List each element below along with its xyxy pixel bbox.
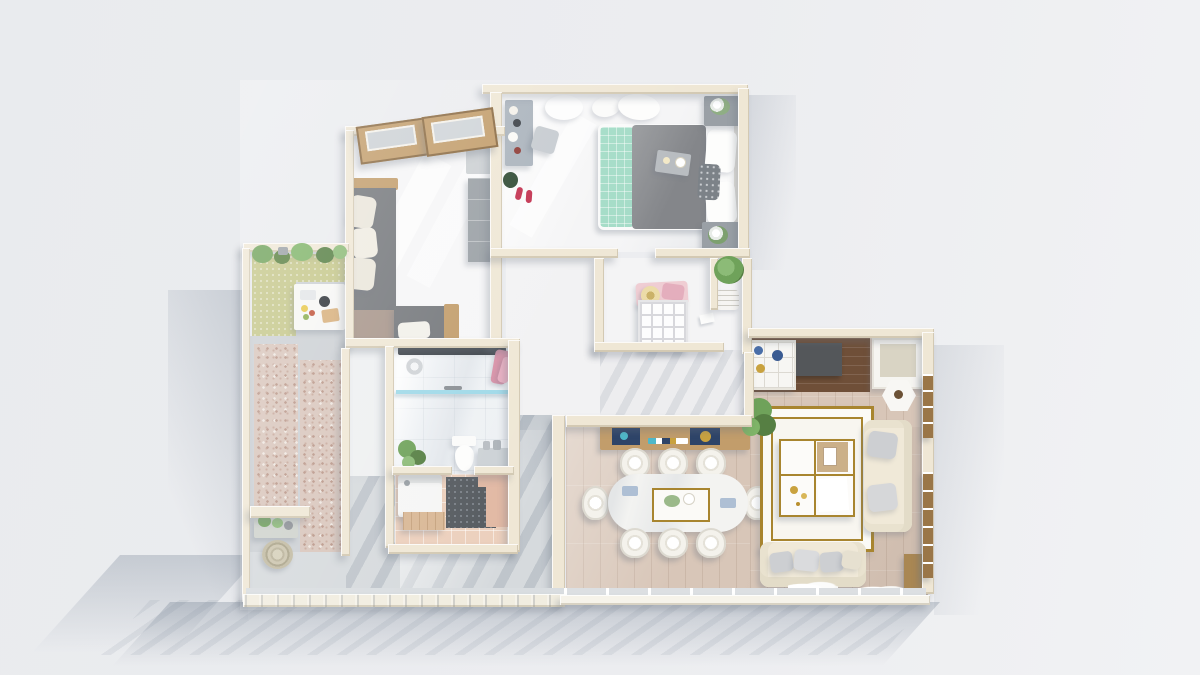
washer-dial (404, 480, 410, 486)
wall-bed2-bottom (345, 338, 520, 348)
mint-quilt (600, 127, 634, 227)
coffee-table-art-card (824, 448, 836, 465)
tray-cup (663, 157, 670, 164)
stand-plant-2 (272, 518, 283, 528)
vanity-bottle-1 (483, 441, 490, 450)
picnic-board (321, 308, 340, 323)
vanity-cup-red (514, 147, 521, 154)
nightstand-bottom-plant (708, 226, 728, 244)
window-frame-right-2 (923, 472, 933, 578)
dining-chair-bottom-3 (696, 528, 726, 558)
shower-glass-screen (396, 390, 512, 394)
wall-bath-laundry-a (392, 466, 452, 475)
pebble-strip-left (254, 344, 298, 508)
sofa-bottom-pillow-1 (769, 550, 795, 573)
coffee-table-cross-v (814, 439, 816, 517)
wall-dining-top (566, 415, 752, 427)
tray-greenery (664, 495, 680, 507)
coffee-table-gold-balls (790, 486, 798, 494)
table-placemat-right (720, 498, 736, 508)
wall-laundry-bottom (388, 544, 518, 554)
daybed-pillow-2 (351, 227, 379, 259)
gray-duvet (632, 125, 706, 229)
balcony-planter-1 (252, 245, 273, 263)
tv (794, 343, 842, 376)
table-gold-tray (652, 488, 710, 522)
shadow-bottom-streaks (100, 600, 930, 655)
console-decor-gold (700, 431, 711, 442)
shadow-right (934, 345, 1004, 615)
wall-bed2-left (345, 130, 354, 348)
picnic-tray (300, 290, 316, 300)
laundry-counter (403, 512, 445, 530)
laundry-basket (716, 290, 739, 310)
wall-hall-living (744, 352, 754, 418)
shower-head (406, 358, 423, 375)
picnic-fruit-green (303, 314, 309, 320)
wall-bath-right (508, 340, 520, 552)
shadow-left (168, 290, 248, 620)
cabinet-decor-blue-1 (754, 346, 763, 355)
vanity-plate-2 (508, 132, 518, 142)
stand-kettle (284, 521, 293, 530)
terrace-rail (243, 594, 565, 607)
balcony-planter-3 (291, 243, 313, 261)
hallway-floor (506, 255, 602, 415)
accent-pillow (697, 163, 721, 200)
sofa-bottom-pillow-4 (841, 550, 863, 571)
floorplan-render (0, 0, 1200, 675)
tray-flower (676, 158, 685, 167)
wall-balcony-step (250, 506, 310, 518)
cabinet-decor-gold (756, 364, 765, 373)
balcony-planter-4 (316, 247, 334, 263)
wall-closet-bottom (594, 342, 724, 352)
console-shelf-books (648, 438, 688, 444)
wall-living-top (748, 328, 934, 338)
dining-chair-bottom-2 (658, 528, 688, 558)
wall-bath-left (385, 346, 394, 548)
shadow-left-low (16, 555, 260, 670)
round-woven-mat (262, 540, 293, 569)
wall-dining-left (552, 415, 565, 600)
closet-nook-plant (714, 256, 744, 284)
wall-closet-left (594, 258, 604, 352)
table-placemat-left (622, 486, 638, 496)
hall-lower-floor (600, 350, 748, 416)
sofa-bottom-pillow-2 (793, 549, 820, 572)
wall-bath-laundry-b (474, 466, 514, 475)
wall-master-bottom-a (490, 248, 618, 258)
laundry-peach-step-side (486, 487, 508, 527)
wall-balcony-left (242, 248, 250, 602)
breakfast-tray (655, 150, 692, 177)
wall-master-right (738, 88, 749, 258)
wall-master-top (482, 84, 748, 94)
laundry-peach-step-top (478, 474, 508, 487)
curtain-blob-1 (545, 95, 583, 120)
console-decor-teal (620, 432, 628, 440)
sofa-right-pillow-2 (866, 482, 898, 512)
picnic-bowl-dark (319, 296, 330, 307)
vanity-bottle-2 (493, 440, 501, 450)
vanity-plate-1 (509, 106, 518, 115)
armchair-seat (880, 344, 916, 377)
tray-dishes (684, 494, 694, 504)
sofa-right-pillow-1 (866, 430, 898, 460)
hex-table-decor (894, 390, 903, 399)
vanity-cup-dark (513, 119, 521, 127)
coffee-table-cross (779, 474, 855, 476)
sofa-bottom-pillow-3 (819, 551, 844, 573)
closet-clothes (661, 283, 685, 302)
balcony-planter-5 (333, 245, 347, 259)
coffee-table-sheet (817, 477, 849, 512)
picnic-fruit-yellow (301, 305, 308, 312)
shower-bar (398, 347, 506, 355)
pebble-strip-right (300, 360, 345, 552)
dining-chair-bottom-1 (620, 528, 650, 558)
window-frame-right-1 (923, 374, 933, 438)
cabinet-decor-blue-2 (772, 350, 783, 361)
dining-chair-left (582, 486, 609, 520)
shadow-master-right (748, 95, 796, 270)
wall-balcony-right (341, 348, 350, 556)
floor-drain (444, 386, 462, 390)
slipper-right (526, 190, 533, 203)
nightstand-top-plant (710, 98, 730, 115)
balcony-planter-pot (278, 247, 288, 255)
dark-plant (503, 172, 518, 188)
living-window-sill (560, 595, 930, 605)
picnic-fruit-red (309, 310, 315, 316)
shadow-bottom (104, 602, 940, 675)
